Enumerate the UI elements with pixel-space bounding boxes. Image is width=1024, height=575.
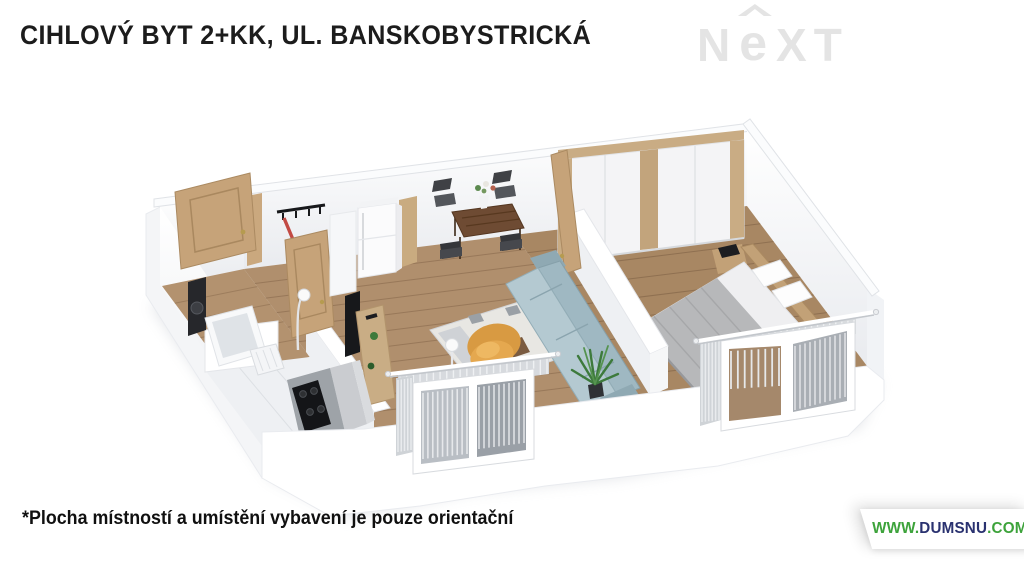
balcony-door-opening <box>729 346 781 421</box>
floorplan-render <box>0 0 1024 575</box>
dining-chair <box>440 241 462 259</box>
real-estate-floorplan-page: CIHLOVÝ BYT 2+KK, UL. BANSKOBYSTRICKÁ Ne… <box>0 0 1024 575</box>
dining-chair <box>500 233 522 251</box>
watermark-url: WWW.DUMSNU.COM <box>872 520 1024 538</box>
washer-column <box>188 277 206 336</box>
watermark-ribbon: WWW.DUMSNU.COM <box>860 509 1024 549</box>
disclaimer-text: *Plocha místností a umístění vybavení je… <box>22 508 513 530</box>
fridge <box>358 197 402 278</box>
entrance-door <box>175 173 262 269</box>
bathroom-door <box>285 230 334 338</box>
